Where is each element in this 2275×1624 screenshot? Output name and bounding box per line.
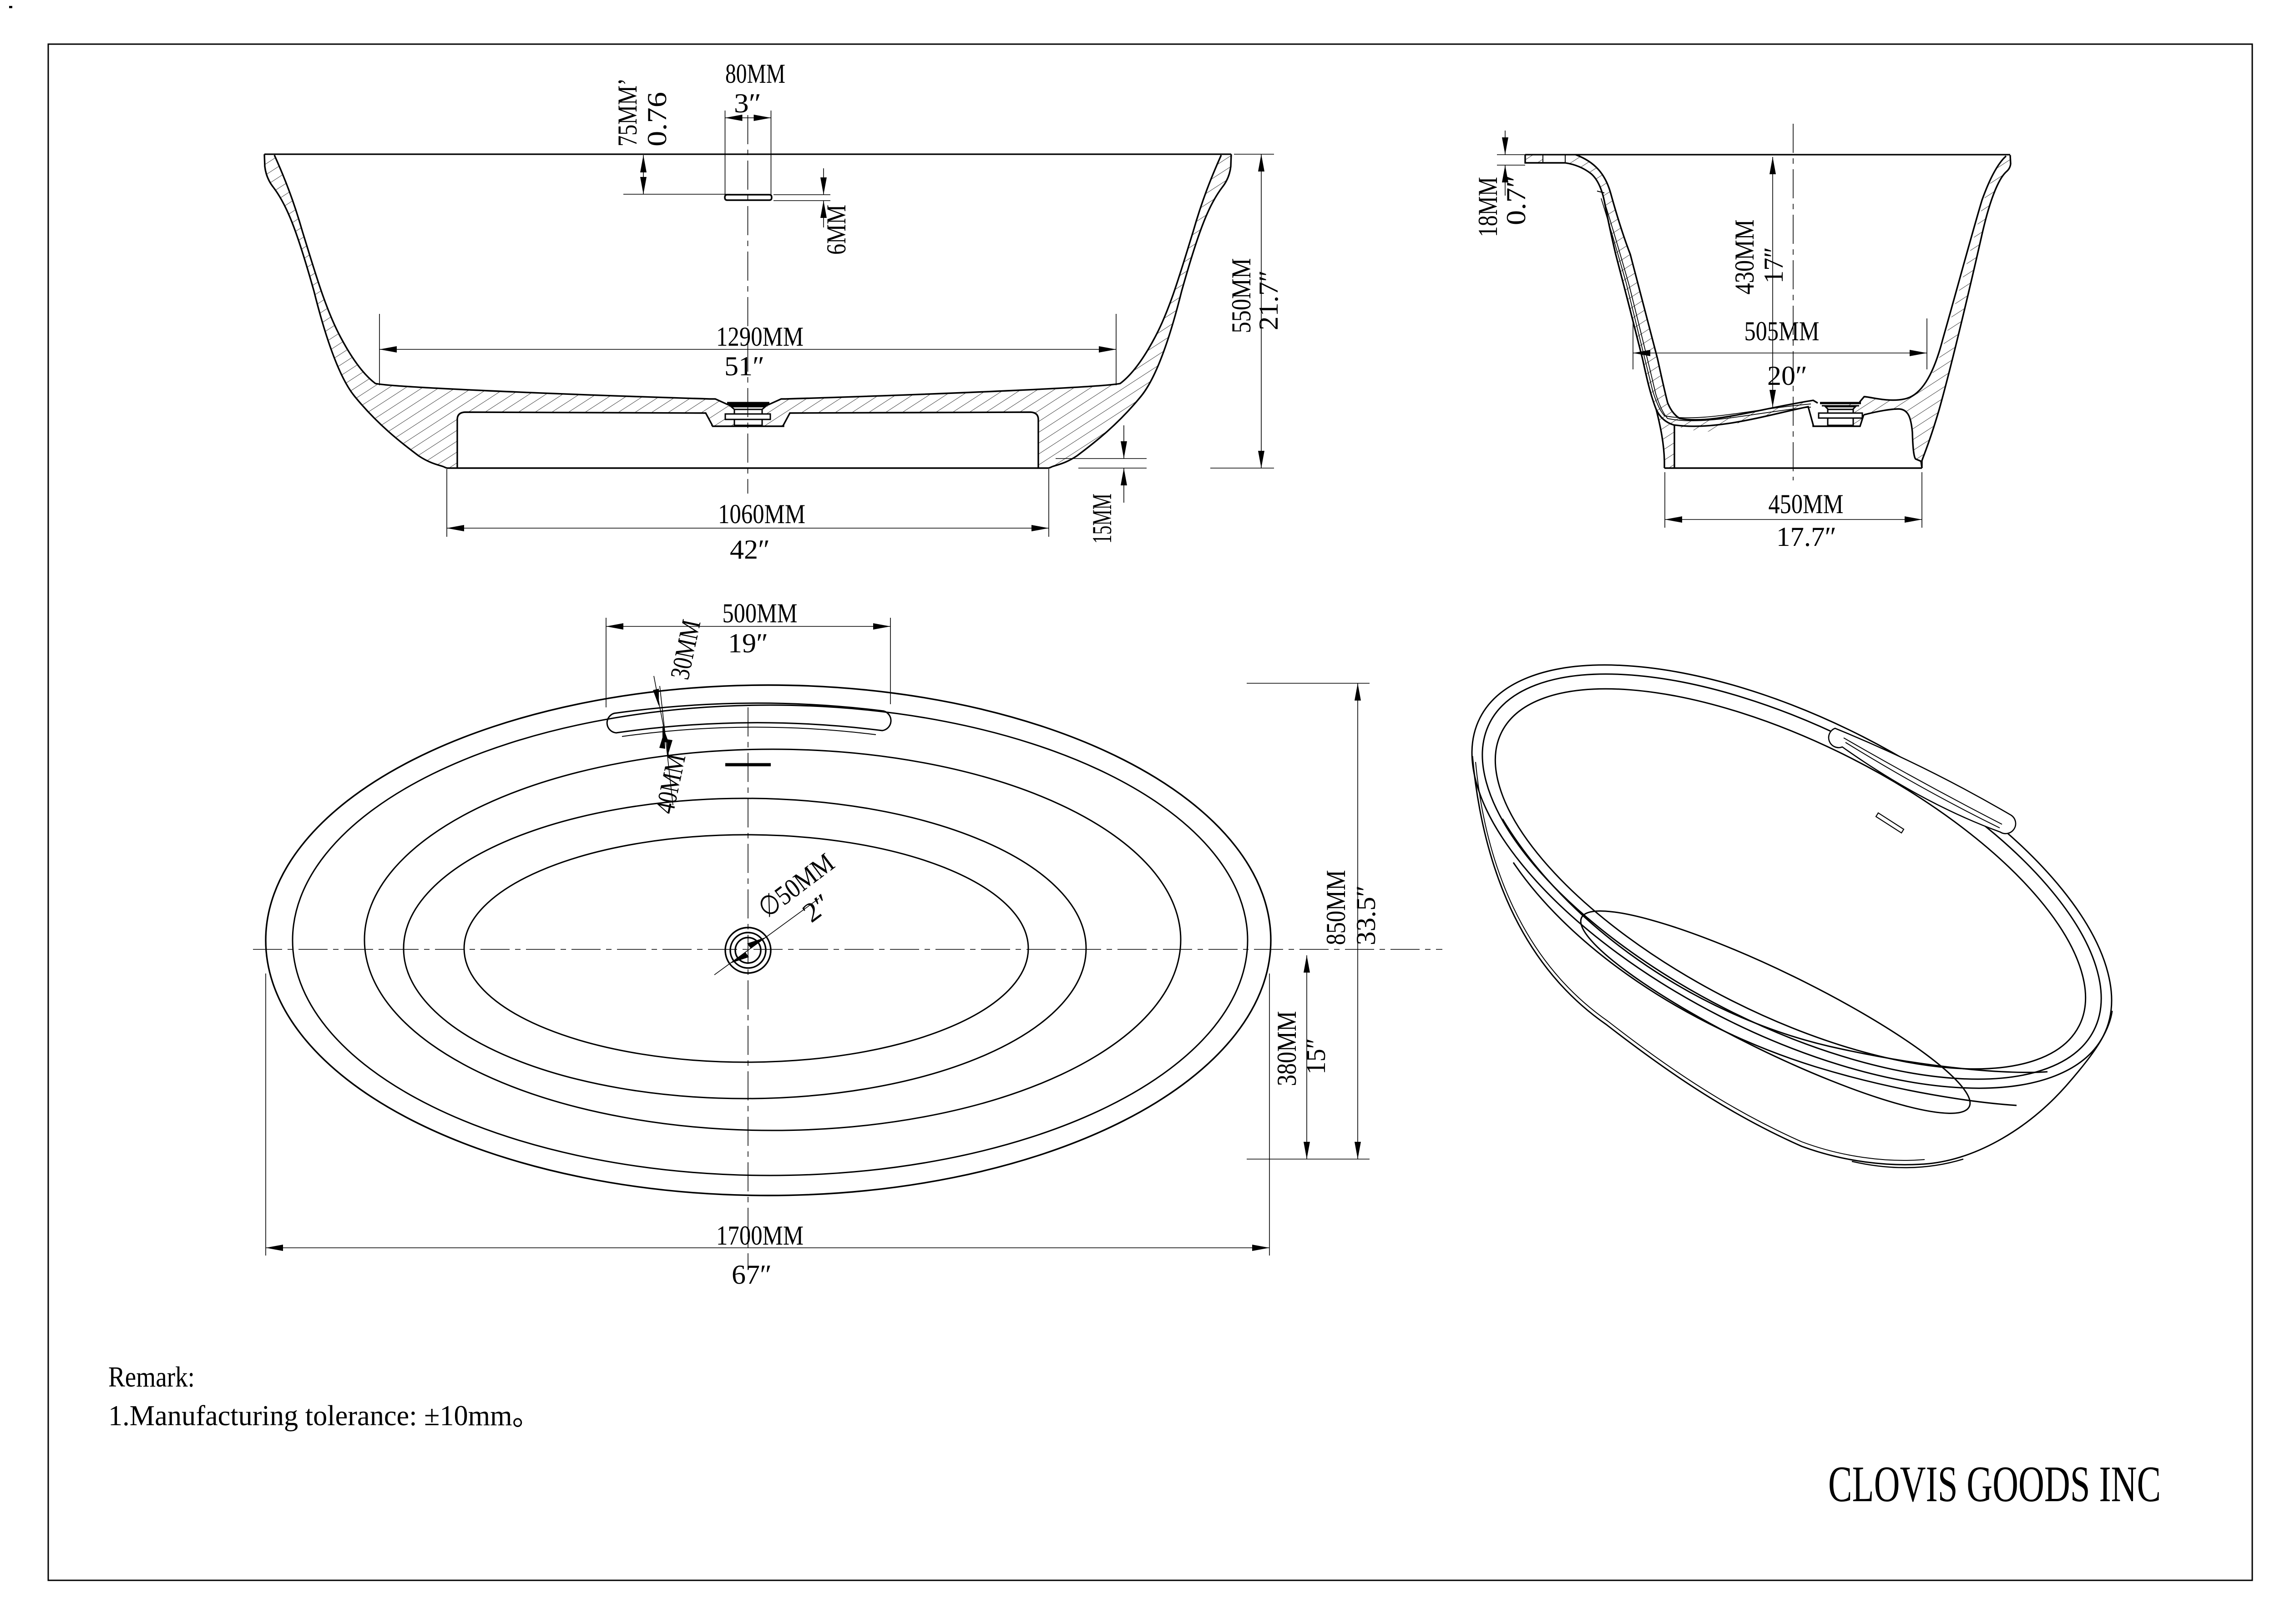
svg-text:850MM: 850MM [1321, 870, 1351, 945]
svg-text:51″: 51″ [724, 351, 764, 381]
svg-text:1060MM: 1060MM [718, 499, 805, 529]
svg-text:80MM: 80MM [725, 59, 785, 89]
svg-text:15MM: 15MM [1087, 494, 1117, 544]
svg-text:1.Manufacturing tolerance: ±10: 1.Manufacturing tolerance: ±10mm。 [108, 1399, 541, 1432]
svg-text:505MM: 505MM [1744, 316, 1820, 346]
svg-text:20″: 20″ [1767, 361, 1807, 391]
svg-text:17″: 17″ [1759, 247, 1789, 283]
svg-text:550MM: 550MM [1226, 258, 1256, 333]
svg-text:21.7″: 21.7″ [1254, 270, 1284, 330]
svg-text:1700MM: 1700MM [716, 1221, 804, 1251]
svg-text:19″: 19″ [728, 628, 768, 658]
svg-text:Remark:: Remark: [108, 1361, 195, 1393]
svg-text:67″: 67″ [732, 1260, 772, 1290]
svg-text:0.7″: 0.7″ [1501, 175, 1531, 225]
svg-text:0.76: 0.76 [642, 92, 672, 146]
svg-text:75MM’: 75MM’ [612, 78, 642, 146]
svg-text:500MM: 500MM [723, 598, 798, 628]
svg-text:3″: 3″ [734, 88, 761, 118]
svg-text:1290MM: 1290MM [716, 322, 804, 352]
svg-text:CLOVIS GOODS INC: CLOVIS GOODS INC [1828, 1456, 2161, 1513]
svg-text:18MM: 18MM [1473, 177, 1503, 237]
svg-text:430MM: 430MM [1729, 220, 1759, 295]
svg-text:6MM: 6MM [821, 205, 851, 255]
svg-text:42″: 42″ [730, 535, 770, 565]
svg-text:450MM: 450MM [1769, 489, 1844, 519]
svg-text:15″: 15″ [1301, 1038, 1331, 1074]
svg-text:33.5″: 33.5″ [1351, 885, 1381, 945]
svg-text:380MM: 380MM [1272, 1011, 1302, 1086]
svg-text:17.7″: 17.7″ [1776, 522, 1836, 552]
